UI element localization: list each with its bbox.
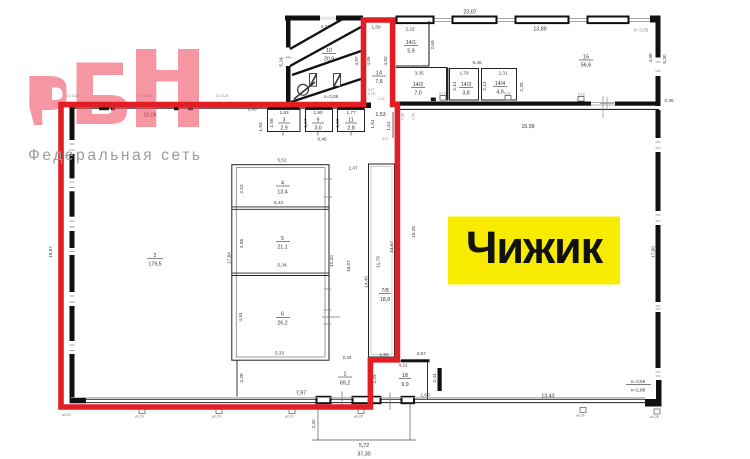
svg-text:1,22: 1,22 — [378, 97, 385, 101]
svg-text:1,59: 1,59 — [335, 118, 340, 128]
svg-text:4: 4 — [281, 181, 284, 187]
svg-text:4,9: 4,9 — [496, 90, 503, 96]
svg-text:11: 11 — [348, 118, 354, 124]
svg-text:4,92: 4,92 — [383, 56, 388, 66]
svg-text:0,22: 0,22 — [504, 92, 511, 96]
svg-text:2,13: 2,13 — [482, 81, 487, 91]
svg-text:5,51: 5,51 — [277, 158, 287, 163]
svg-text:7,0: 7,0 — [414, 91, 421, 97]
svg-text:5,34: 5,34 — [277, 263, 287, 268]
svg-text:5: 5 — [281, 236, 284, 242]
svg-text:17,84: 17,84 — [227, 252, 232, 264]
svg-text:0,19: 0,19 — [439, 92, 446, 96]
svg-text:18,8: 18,8 — [380, 297, 390, 303]
svg-text:2,20: 2,20 — [311, 419, 316, 429]
svg-text:9,9: 9,9 — [401, 382, 408, 388]
svg-text:n=3,09: n=3,09 — [324, 94, 339, 99]
svg-text:6,46: 6,46 — [317, 137, 327, 142]
svg-text:13,67: 13,67 — [389, 241, 394, 253]
svg-text:4,91: 4,91 — [238, 312, 243, 322]
svg-text:7/8: 7/8 — [381, 288, 388, 294]
svg-text:3,96: 3,96 — [239, 239, 244, 249]
svg-text:4,98: 4,98 — [648, 53, 653, 63]
svg-text:15: 15 — [583, 55, 589, 61]
svg-text:18,67: 18,67 — [48, 246, 53, 258]
svg-text:2,57: 2,57 — [416, 351, 426, 356]
svg-text:14,40: 14,40 — [364, 276, 369, 288]
svg-text:18: 18 — [402, 373, 408, 379]
svg-text:2,14: 2,14 — [452, 81, 457, 91]
svg-text:14: 14 — [376, 71, 382, 77]
svg-text:1,58: 1,58 — [269, 118, 274, 128]
svg-text:h=3,05: h=3,05 — [634, 28, 649, 33]
svg-text:14/2: 14/2 — [413, 82, 423, 88]
svg-text:⌀0,28: ⌀0,28 — [354, 415, 363, 419]
svg-text:3,0: 3,0 — [314, 126, 321, 132]
svg-text:4,85: 4,85 — [366, 56, 371, 66]
svg-text:5,33: 5,33 — [274, 200, 284, 205]
svg-text:7,97: 7,97 — [296, 391, 306, 397]
svg-text:26,2: 26,2 — [277, 321, 287, 327]
svg-text:Федеральная сеть: Федеральная сеть — [28, 147, 203, 164]
svg-text:1,60: 1,60 — [379, 352, 389, 357]
svg-text:21,1: 21,1 — [277, 245, 287, 251]
svg-text:12,10: 12,10 — [329, 255, 334, 267]
svg-text:5,33: 5,33 — [275, 351, 285, 356]
svg-text:1,61: 1,61 — [370, 119, 375, 129]
svg-text:1,53: 1,53 — [375, 112, 385, 118]
svg-text:2,9: 2,9 — [280, 126, 287, 132]
svg-text:5,24: 5,24 — [279, 57, 284, 67]
svg-text:2,31: 2,31 — [498, 71, 508, 76]
svg-text:4,21: 4,21 — [320, 24, 330, 29]
svg-text:23,07: 23,07 — [463, 10, 476, 16]
svg-text:37,30: 37,30 — [357, 452, 370, 458]
svg-text:13,43: 13,43 — [541, 394, 554, 400]
svg-text:9: 9 — [317, 118, 320, 124]
svg-text:4,22: 4,22 — [398, 363, 408, 368]
svg-text:3,8: 3,8 — [462, 91, 469, 97]
svg-text:5,9: 5,9 — [407, 49, 414, 55]
svg-text:7,8: 7,8 — [375, 79, 382, 85]
svg-text:1,90: 1,90 — [313, 110, 323, 115]
svg-text:17,60: 17,60 — [651, 246, 656, 258]
svg-text:2,44: 2,44 — [432, 373, 437, 383]
svg-text:13,89: 13,89 — [533, 27, 546, 33]
svg-text:⌀0,29: ⌀0,29 — [212, 415, 221, 419]
svg-text:1,77: 1,77 — [346, 110, 356, 115]
svg-text:14/1: 14/1 — [406, 40, 416, 46]
svg-text:5,72: 5,72 — [359, 443, 369, 449]
svg-text:6: 6 — [281, 312, 284, 318]
svg-text:0,36: 0,36 — [664, 98, 674, 103]
svg-text:3: 3 — [283, 118, 286, 124]
svg-text:1,83: 1,83 — [279, 110, 289, 115]
svg-text:2,44: 2,44 — [342, 355, 352, 360]
svg-text:5,30: 5,30 — [662, 54, 667, 64]
svg-text:14/3: 14/3 — [461, 82, 471, 88]
svg-text:2,25: 2,25 — [519, 82, 524, 92]
svg-text:0,28: 0,28 — [401, 113, 405, 120]
svg-text:15,28: 15,28 — [411, 226, 416, 238]
svg-text:5,46: 5,46 — [472, 60, 482, 65]
svg-text:⌀0,29: ⌀0,29 — [285, 415, 294, 419]
svg-text:0,17: 0,17 — [382, 137, 389, 141]
svg-text:⌀0,28: ⌀0,28 — [650, 415, 659, 419]
svg-text:2,47: 2,47 — [348, 166, 358, 171]
svg-text:2,69: 2,69 — [430, 40, 435, 50]
svg-text:2,1·0,16: 2,1·0,16 — [216, 94, 229, 98]
svg-text:10: 10 — [326, 48, 332, 54]
svg-text:2,28: 2,28 — [239, 373, 244, 383]
svg-text:1,79: 1,79 — [459, 71, 469, 76]
svg-text:1,60: 1,60 — [420, 393, 430, 398]
svg-text:0,75: 0,75 — [368, 92, 375, 96]
svg-text:⌀0,29: ⌀0,29 — [135, 415, 144, 419]
svg-text:2,52: 2,52 — [239, 184, 244, 194]
svg-text:2,8: 2,8 — [347, 126, 354, 132]
svg-text:3,35: 3,35 — [414, 71, 424, 76]
svg-text:1,53: 1,53 — [258, 122, 263, 132]
svg-text:69,2: 69,2 — [340, 381, 350, 387]
svg-text:56,6: 56,6 — [581, 63, 591, 69]
svg-text:1: 1 — [344, 372, 347, 378]
svg-text:4,97: 4,97 — [354, 56, 359, 66]
svg-text:1,61: 1,61 — [386, 121, 391, 131]
svg-text:0,19: 0,19 — [578, 93, 585, 97]
svg-text:20,9: 20,9 — [324, 57, 334, 63]
svg-text:2,22: 2,22 — [405, 27, 415, 32]
svg-text:n=3,56: n=3,56 — [631, 379, 646, 384]
svg-text:15,99: 15,99 — [521, 124, 534, 130]
svg-text:14/4: 14/4 — [495, 81, 505, 87]
svg-text:n=2,88: n=2,88 — [631, 388, 646, 393]
svg-text:11,79: 11,79 — [376, 256, 381, 268]
svg-text:⌀0,28: ⌀0,28 — [576, 414, 585, 418]
svg-text:⌀0,29: ⌀0,29 — [62, 413, 71, 417]
svg-text:Чижик: Чижик — [466, 222, 604, 273]
svg-text:1,59: 1,59 — [371, 25, 381, 30]
svg-text:179,5: 179,5 — [148, 262, 161, 268]
svg-text:16,07: 16,07 — [346, 260, 351, 272]
svg-text:1,57: 1,57 — [303, 118, 308, 128]
svg-text:0,75: 0,75 — [412, 113, 416, 120]
svg-text:13,4: 13,4 — [277, 190, 287, 196]
